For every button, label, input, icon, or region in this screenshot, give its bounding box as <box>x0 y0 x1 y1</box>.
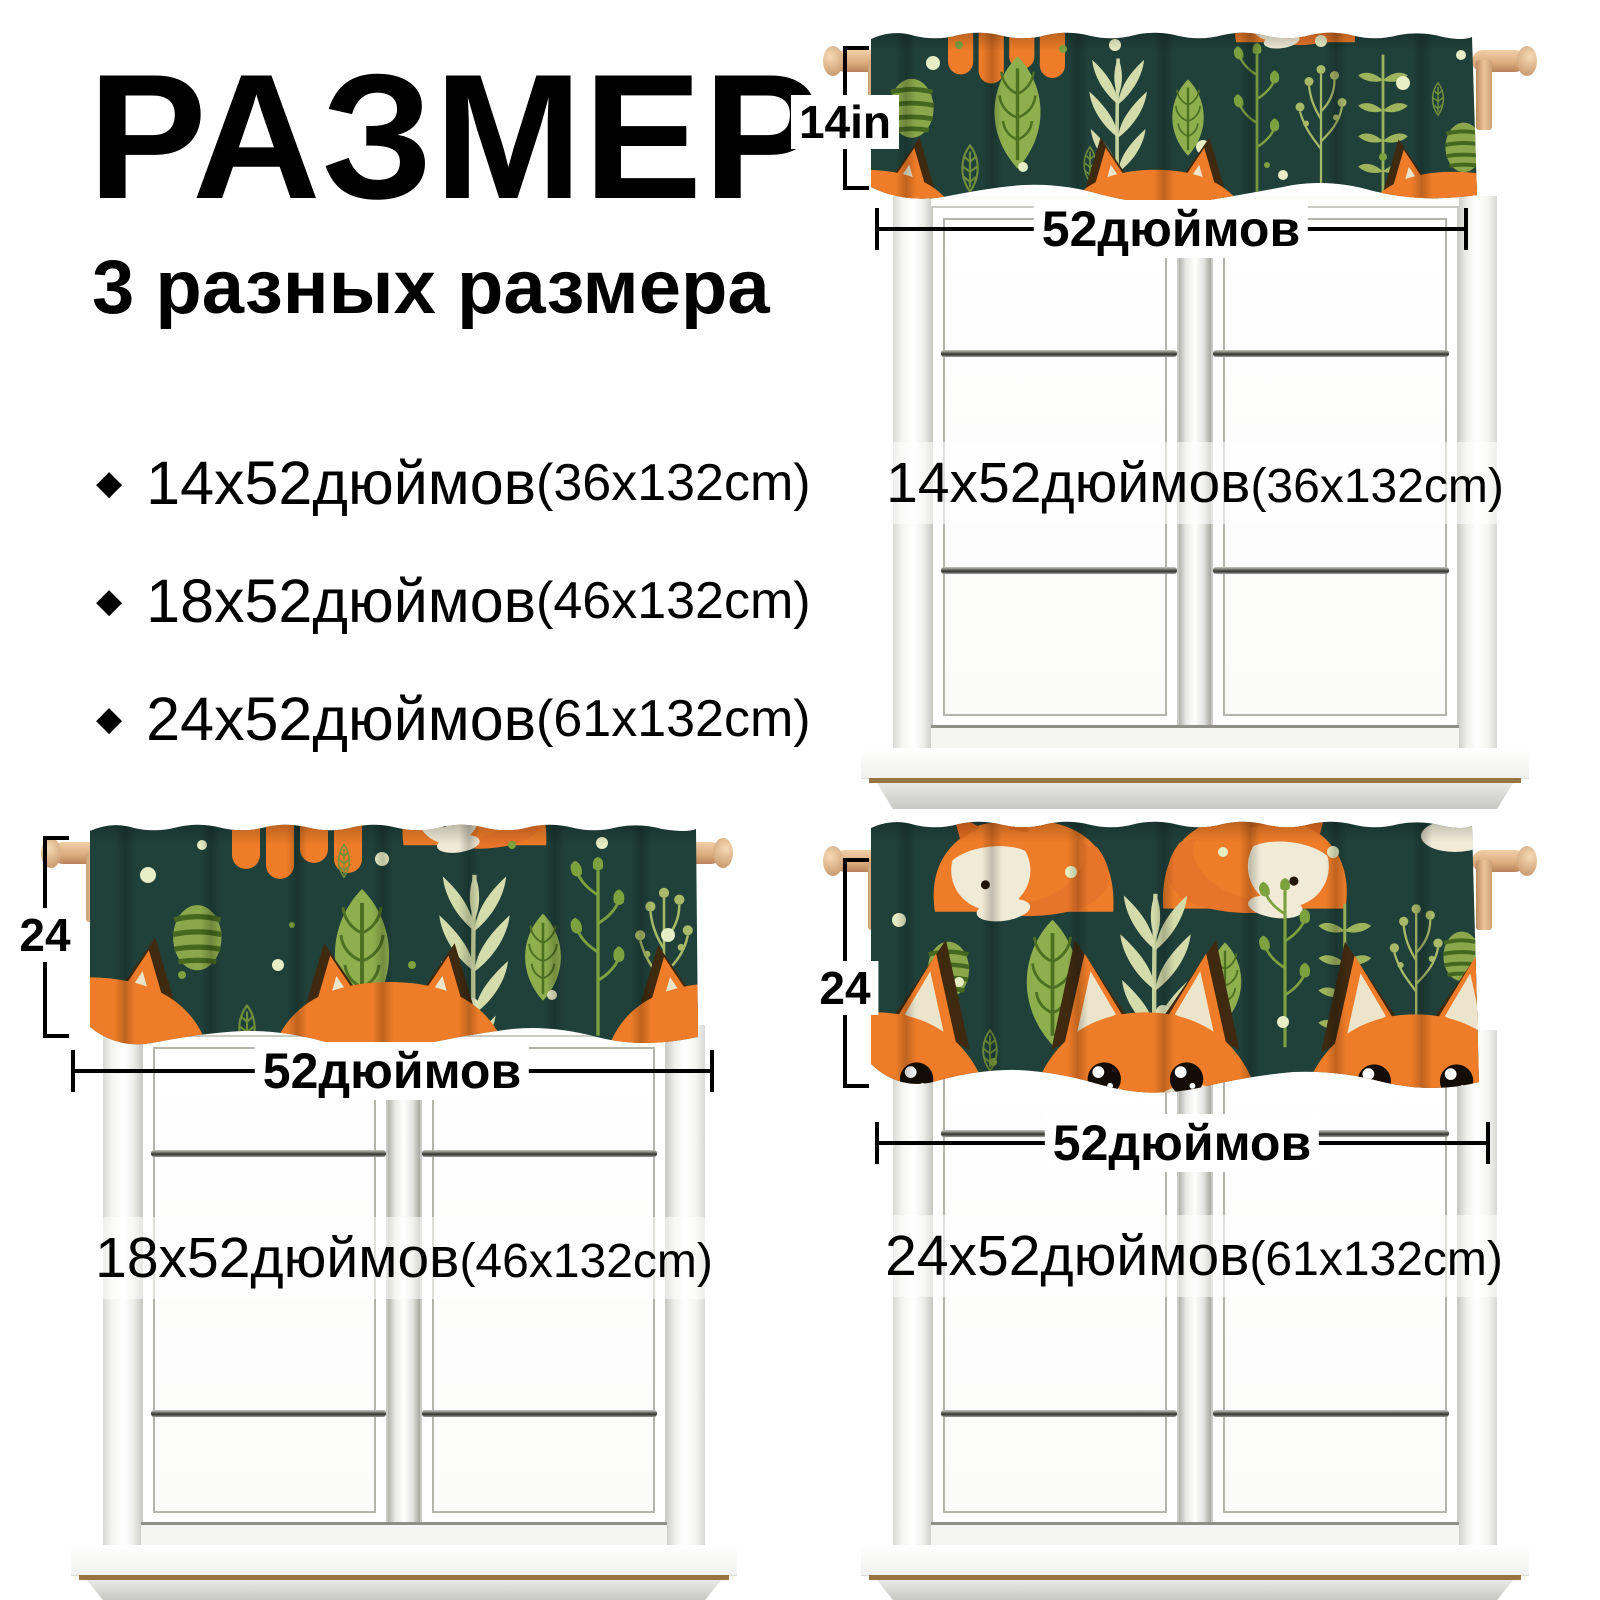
window-size-label: 24x52дюймов(61x132cm) <box>869 1215 1519 1297</box>
size-cm-text: (46x132cm) <box>536 571 811 631</box>
window-mullion-bar <box>151 1150 386 1157</box>
valance-14in <box>863 25 1480 207</box>
window-sill <box>861 748 1529 778</box>
diamond-bullet-icon: ◆ <box>96 463 122 503</box>
window-size-text: 24x52дюймов <box>885 1224 1249 1288</box>
window-mullion-bar <box>941 350 1177 357</box>
sill-molding <box>877 1580 1513 1600</box>
height-dimension-label: 24 <box>11 908 78 962</box>
curtain-rod-right <box>1472 850 1526 872</box>
sill-molding <box>87 1580 721 1600</box>
sill-trim-line <box>869 778 1521 783</box>
size-list: ◆ 14x52дюймов (36x132cm) ◆ 18x52дюймов (… <box>96 424 811 778</box>
dim-tick <box>1464 208 1468 250</box>
valance-24in <box>863 812 1480 1104</box>
window-size-label: 14x52дюймов(36x132cm) <box>870 442 1520 524</box>
size-list-item: ◆ 24x52дюймов (61x132cm) <box>96 660 811 778</box>
width-dimension-label: 52дюймов <box>255 1042 529 1100</box>
size-cm-text: (36x132cm) <box>536 453 811 513</box>
dim-tick <box>843 186 869 190</box>
sill-trim-line <box>869 1575 1521 1580</box>
window-size-text: 18x52дюймов <box>95 1226 459 1290</box>
window-mullion-bar <box>1213 567 1449 574</box>
window-size-cm-text: (61x132cm) <box>1249 1233 1502 1286</box>
curtain-rod-right <box>1472 50 1526 72</box>
window-mullion-bar <box>941 1410 1177 1417</box>
size-list-item: ◆ 14x52дюймов (36x132cm) <box>96 424 811 542</box>
window-mullion-bar <box>941 567 1177 574</box>
window-mullion-bar <box>422 1410 657 1417</box>
size-infographic: РАЗМЕР 3 разных размера ◆ 14x52дюймов (3… <box>0 0 1600 1600</box>
dim-tick <box>43 1034 69 1038</box>
size-text: 24x52дюймов <box>146 684 536 754</box>
dim-tick <box>843 1084 869 1088</box>
window-size-text: 14x52дюймов <box>886 451 1250 515</box>
page-title: РАЗМЕР <box>88 48 823 226</box>
diamond-bullet-icon: ◆ <box>96 699 122 739</box>
valance-18in <box>82 815 704 1052</box>
height-dimension-label: 24 <box>811 961 878 1015</box>
window-sill <box>861 1545 1529 1575</box>
window-mullion-bar <box>1213 1410 1449 1417</box>
sill-trim-line <box>79 1575 729 1580</box>
window-size-label: 18x52дюймов(46x132cm) <box>79 1217 729 1299</box>
window-mullion-bar <box>422 1150 657 1157</box>
size-cm-text: (61x132cm) <box>536 689 811 749</box>
width-dimension-label: 52дюймов <box>1034 200 1308 258</box>
size-text: 18x52дюймов <box>146 566 536 636</box>
window-size-cm-text: (46x132cm) <box>459 1235 712 1288</box>
sill-molding <box>877 783 1513 809</box>
window-bottom-rail <box>931 725 1459 748</box>
diamond-bullet-icon: ◆ <box>96 581 122 621</box>
size-text: 14x52дюймов <box>146 448 536 518</box>
window-bottom-rail <box>141 1522 667 1545</box>
dim-tick <box>710 1050 714 1092</box>
window-mullion-bar <box>1213 350 1449 357</box>
window-sill <box>71 1545 737 1575</box>
page-subtitle: 3 разных размера <box>92 250 770 326</box>
size-list-item: ◆ 18x52дюймов (46x132cm) <box>96 542 811 660</box>
height-dimension-label: 14in <box>791 95 899 149</box>
window-bottom-rail <box>931 1522 1459 1545</box>
width-dimension-label: 52дюймов <box>1045 1114 1319 1172</box>
dim-tick <box>1486 1122 1490 1164</box>
window-size-cm-text: (36x132cm) <box>1250 460 1503 513</box>
window-mullion-bar <box>151 1410 386 1417</box>
